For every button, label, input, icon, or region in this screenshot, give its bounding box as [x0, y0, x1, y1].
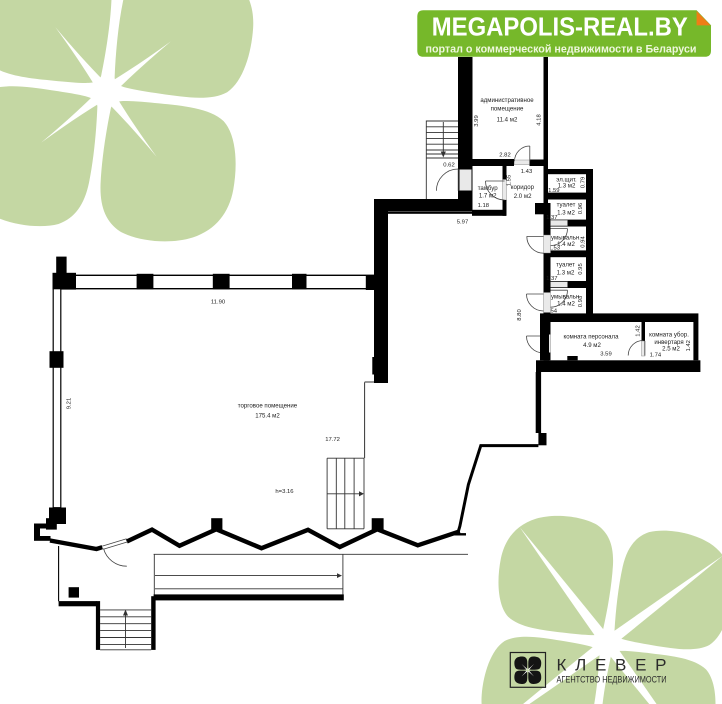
svg-text:туалет: туалет — [556, 262, 575, 269]
svg-text:0.94: 0.94 — [581, 236, 587, 248]
svg-text:туалет: туалет — [557, 202, 576, 209]
svg-text:2.5 м2: 2.5 м2 — [662, 346, 680, 353]
svg-text:комната персонала: комната персонала — [563, 334, 619, 341]
svg-text:АГЕНТСТВО НЕДВИЖИМОСТИ: АГЕНТСТВО НЕДВИЖИМОСТИ — [557, 675, 667, 685]
svg-text:1.3 м2: 1.3 м2 — [557, 270, 575, 277]
svg-text:11.90: 11.90 — [211, 300, 226, 306]
svg-text:1.74: 1.74 — [650, 353, 662, 359]
svg-text:17.72: 17.72 — [325, 437, 340, 443]
svg-text:4.18: 4.18 — [536, 114, 542, 126]
svg-text:2.82: 2.82 — [499, 152, 510, 158]
svg-text:комната убор.: комната убор. — [649, 332, 689, 339]
svg-text:1.18: 1.18 — [478, 203, 490, 209]
svg-text:портал о коммерческой недвижим: портал о коммерческой недвижимости в Бел… — [426, 43, 697, 55]
svg-text:1.3 м2: 1.3 м2 — [558, 182, 576, 189]
svg-text:9.21: 9.21 — [67, 398, 73, 409]
svg-text:1.3 м2: 1.3 м2 — [557, 210, 575, 217]
svg-text:2.0 м2: 2.0 м2 — [514, 193, 532, 200]
svg-text:h=3.16: h=3.16 — [275, 489, 294, 495]
svg-text:0.79: 0.79 — [581, 177, 587, 188]
svg-text:5.97: 5.97 — [457, 219, 468, 225]
svg-text:4.9 м2: 4.9 м2 — [583, 342, 601, 349]
svg-text:1.4 м2: 1.4 м2 — [557, 301, 575, 308]
svg-text:3.59: 3.59 — [600, 351, 611, 357]
svg-text:1.42: 1.42 — [636, 325, 642, 336]
svg-text:0.96: 0.96 — [578, 202, 584, 214]
svg-text:MEGAPOLIS-REAL.BY: MEGAPOLIS-REAL.BY — [432, 14, 688, 42]
svg-text:8.80: 8.80 — [517, 309, 523, 321]
svg-text:11.4 м2: 11.4 м2 — [497, 117, 518, 124]
svg-text:0.93: 0.93 — [578, 295, 584, 307]
svg-text:175.4 м2: 175.4 м2 — [255, 413, 280, 420]
svg-text:торговое помещение: торговое помещение — [238, 403, 298, 410]
svg-text:1.43: 1.43 — [521, 169, 533, 175]
svg-text:административное: административное — [480, 97, 534, 104]
svg-text:1.42: 1.42 — [686, 340, 692, 351]
svg-text:0.62: 0.62 — [443, 163, 454, 169]
svg-text:коридор: коридор — [511, 184, 535, 191]
svg-text:1.7 м2: 1.7 м2 — [479, 193, 497, 200]
svg-text:1.55: 1.55 — [507, 174, 513, 186]
svg-text:умывальн.: умывальн. — [551, 294, 581, 301]
svg-text:3.99: 3.99 — [474, 115, 480, 126]
svg-text:0.95: 0.95 — [578, 263, 584, 275]
svg-text:помещение: помещение — [491, 105, 524, 112]
